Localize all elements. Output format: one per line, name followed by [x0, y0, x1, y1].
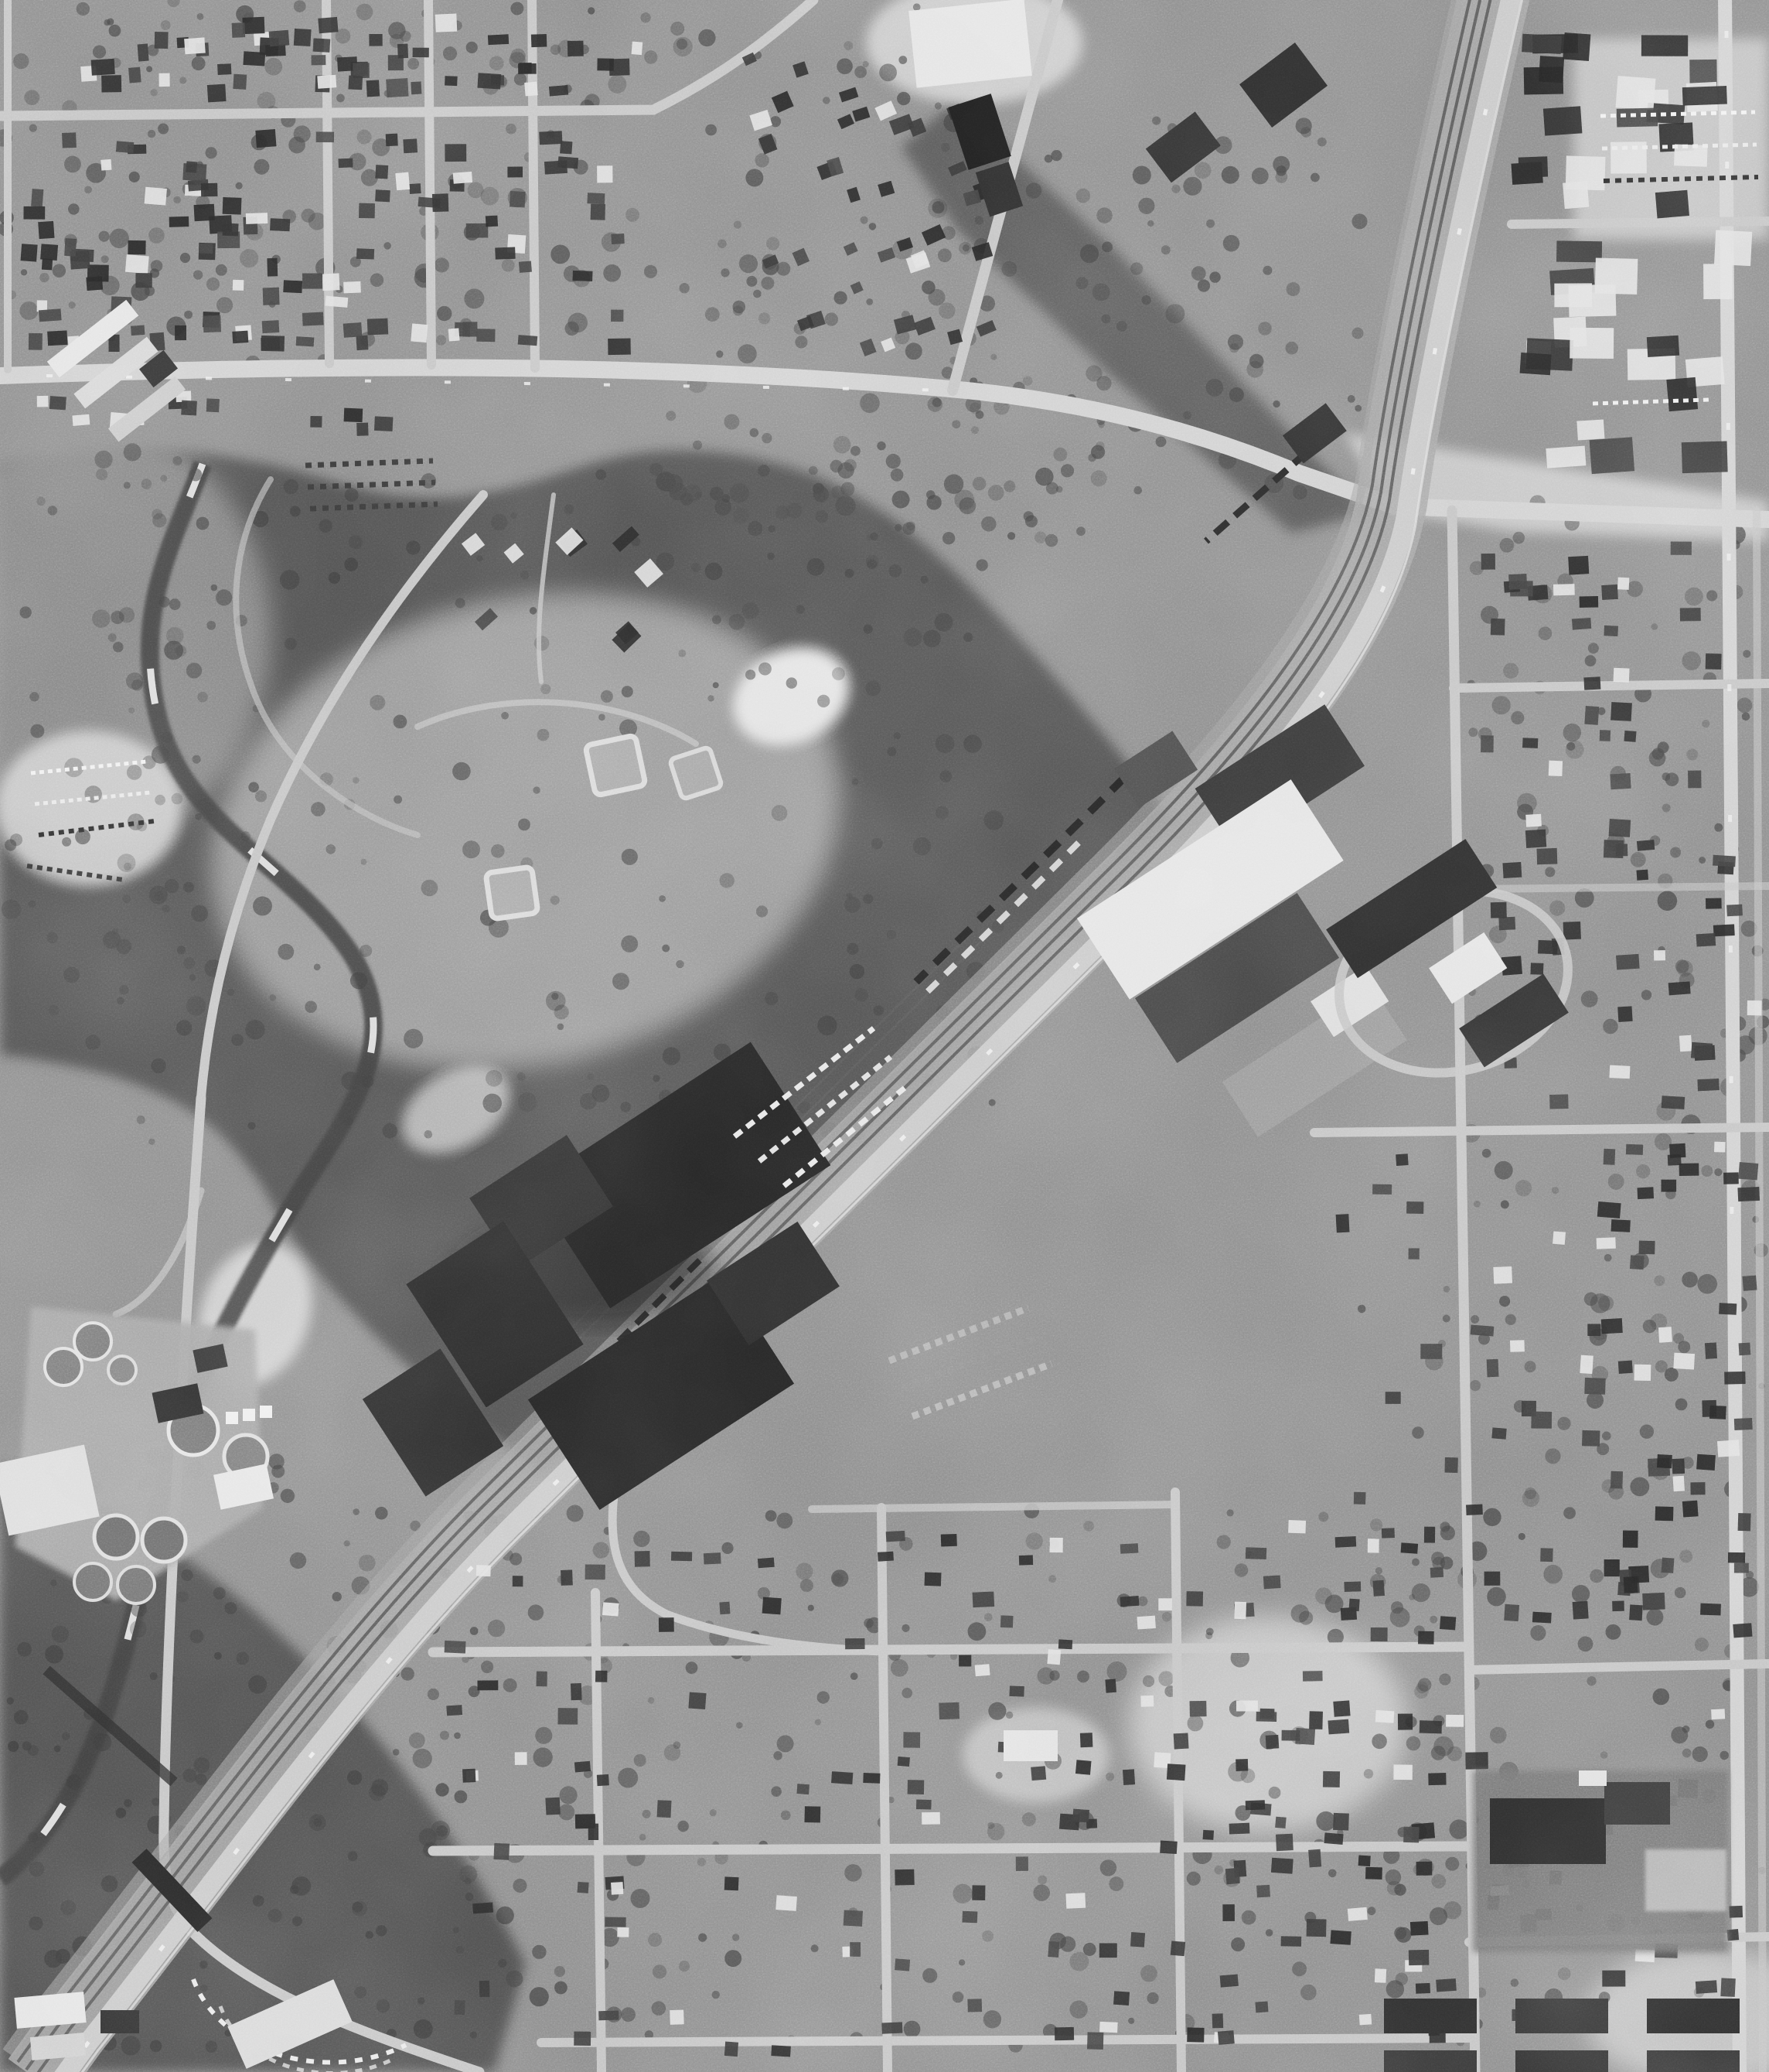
aerial-photo-stage [0, 0, 1769, 2072]
aerial-photograph [0, 0, 1769, 2072]
ground-base [0, 0, 1769, 2072]
